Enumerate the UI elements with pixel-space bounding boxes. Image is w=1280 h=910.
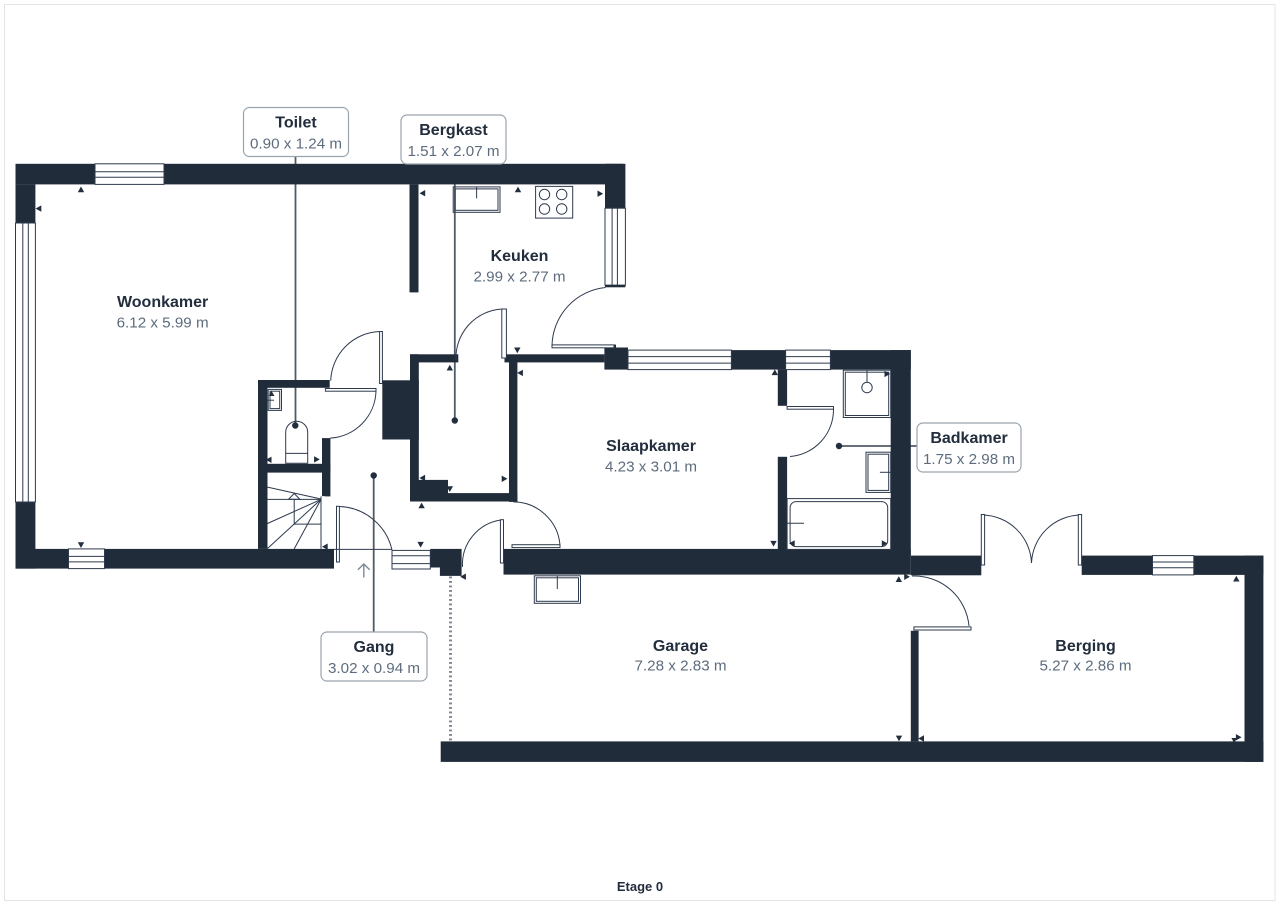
svg-text:Gang: Gang	[354, 639, 395, 656]
svg-text:5.27 x 2.86 m: 5.27 x 2.86 m	[1039, 658, 1131, 675]
svg-text:1.51 x 2.07 m: 1.51 x 2.07 m	[407, 143, 499, 160]
svg-text:0.90 x 1.24 m: 0.90 x 1.24 m	[250, 136, 342, 153]
svg-text:Berging: Berging	[1055, 638, 1115, 655]
svg-text:Keuken: Keuken	[491, 248, 549, 265]
svg-text:4.23 x 3.01 m: 4.23 x 3.01 m	[605, 459, 697, 476]
svg-text:3.02 x 0.94 m: 3.02 x 0.94 m	[328, 660, 420, 677]
svg-text:1.75 x 2.98 m: 1.75 x 2.98 m	[923, 451, 1015, 468]
svg-text:Woonkamer: Woonkamer	[117, 294, 208, 311]
svg-text:Badkamer: Badkamer	[930, 430, 1007, 447]
svg-text:Etage 0: Etage 0	[617, 879, 663, 894]
svg-text:Toilet: Toilet	[275, 115, 317, 132]
svg-text:2.99 x 2.77 m: 2.99 x 2.77 m	[473, 269, 565, 286]
svg-text:7.28 x 2.83 m: 7.28 x 2.83 m	[634, 658, 726, 675]
svg-text:Garage: Garage	[653, 638, 708, 655]
svg-text:Slaapkamer: Slaapkamer	[606, 438, 696, 455]
svg-text:6.12 x 5.99 m: 6.12 x 5.99 m	[117, 315, 209, 332]
svg-text:Bergkast: Bergkast	[419, 122, 488, 139]
